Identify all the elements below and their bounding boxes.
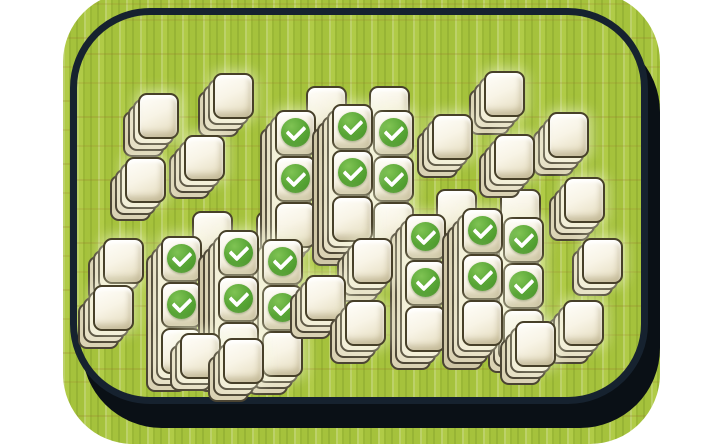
tile-stack[interactable] bbox=[548, 112, 589, 158]
mahjong-tile[interactable] bbox=[503, 263, 544, 309]
mahjong-tile[interactable] bbox=[275, 156, 316, 202]
mahjong-tile[interactable] bbox=[262, 239, 303, 285]
game-screen bbox=[0, 0, 705, 444]
mahjong-tile[interactable] bbox=[218, 276, 259, 322]
tile-stack[interactable] bbox=[184, 135, 225, 181]
mahjong-tile[interactable] bbox=[564, 177, 605, 223]
mahjong-tile[interactable] bbox=[405, 260, 446, 306]
tile-stack[interactable] bbox=[345, 300, 386, 346]
mahjong-tile[interactable] bbox=[373, 110, 414, 156]
tile-stack[interactable] bbox=[125, 157, 166, 203]
mahjong-tile[interactable] bbox=[345, 300, 386, 346]
mahjong-tile[interactable] bbox=[462, 300, 503, 346]
mahjong-tile[interactable] bbox=[432, 114, 473, 160]
tile-stack[interactable] bbox=[462, 208, 503, 346]
mahjong-tile[interactable] bbox=[332, 196, 373, 242]
check-icon bbox=[281, 118, 310, 147]
mahjong-tile[interactable] bbox=[161, 282, 202, 328]
tile-stack[interactable] bbox=[103, 238, 144, 284]
mahjong-tile[interactable] bbox=[494, 134, 535, 180]
tile-stack[interactable] bbox=[582, 238, 623, 284]
check-icon bbox=[268, 247, 297, 276]
tile-stack[interactable] bbox=[138, 93, 179, 139]
mahjong-tile[interactable] bbox=[563, 300, 604, 346]
mahjong-tile[interactable] bbox=[125, 157, 166, 203]
mahjong-tile[interactable] bbox=[223, 338, 264, 384]
mahjong-tile[interactable] bbox=[352, 238, 393, 284]
check-icon bbox=[509, 225, 538, 254]
check-icon bbox=[411, 268, 440, 297]
check-icon bbox=[167, 290, 196, 319]
check-icon bbox=[379, 118, 408, 147]
mahjong-tile[interactable] bbox=[503, 217, 544, 263]
mahjong-tile[interactable] bbox=[275, 110, 316, 156]
check-icon bbox=[281, 164, 310, 193]
mahjong-tile[interactable] bbox=[515, 321, 556, 367]
tile-stack[interactable] bbox=[564, 177, 605, 223]
tile-stack[interactable] bbox=[432, 114, 473, 160]
mahjong-tile[interactable] bbox=[462, 208, 503, 254]
mahjong-tile[interactable] bbox=[548, 112, 589, 158]
mahjong-tile[interactable] bbox=[462, 254, 503, 300]
check-icon bbox=[468, 262, 497, 291]
check-icon bbox=[167, 244, 196, 273]
mahjong-tile[interactable] bbox=[373, 156, 414, 202]
tile-stack[interactable] bbox=[405, 214, 446, 352]
mahjong-tile[interactable] bbox=[332, 150, 373, 196]
check-icon bbox=[468, 216, 497, 245]
check-icon bbox=[224, 238, 253, 267]
mahjong-tile[interactable] bbox=[405, 214, 446, 260]
tile-stack[interactable] bbox=[563, 300, 604, 346]
mahjong-tile[interactable] bbox=[184, 135, 225, 181]
tile-stack[interactable] bbox=[275, 110, 316, 248]
check-icon bbox=[338, 158, 367, 187]
tile-stack[interactable] bbox=[93, 285, 134, 331]
tile-stack[interactable] bbox=[332, 104, 373, 242]
tile-stack[interactable] bbox=[484, 71, 525, 117]
mahjong-tile[interactable] bbox=[218, 230, 259, 276]
mahjong-tile[interactable] bbox=[405, 306, 446, 352]
tiles-layer bbox=[0, 0, 705, 444]
check-icon bbox=[224, 284, 253, 313]
check-icon bbox=[509, 271, 538, 300]
mahjong-tile[interactable] bbox=[93, 285, 134, 331]
check-icon bbox=[338, 112, 367, 141]
mahjong-tile[interactable] bbox=[103, 238, 144, 284]
tile-stack[interactable] bbox=[494, 134, 535, 180]
mahjong-tile[interactable] bbox=[582, 238, 623, 284]
tile-stack[interactable] bbox=[515, 321, 556, 367]
tile-stack[interactable] bbox=[223, 338, 264, 384]
mahjong-tile[interactable] bbox=[138, 93, 179, 139]
mahjong-tile[interactable] bbox=[213, 73, 254, 119]
check-icon bbox=[379, 164, 408, 193]
mahjong-tile[interactable] bbox=[161, 236, 202, 282]
tile-stack[interactable] bbox=[352, 238, 393, 284]
mahjong-tile[interactable] bbox=[332, 104, 373, 150]
check-icon bbox=[411, 222, 440, 251]
tile-stack[interactable] bbox=[213, 73, 254, 119]
mahjong-tile[interactable] bbox=[484, 71, 525, 117]
